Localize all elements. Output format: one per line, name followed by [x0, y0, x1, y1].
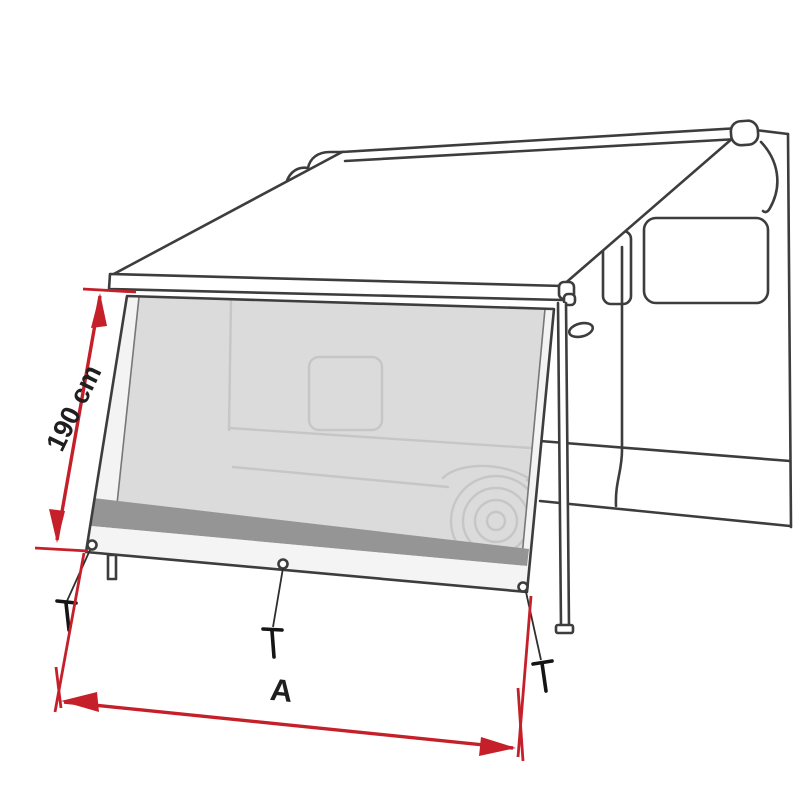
tent-peg-icon [533, 661, 552, 691]
height-dimension-label: 190 cm [40, 360, 107, 455]
grommet-icon [88, 541, 97, 550]
awning-panel-diagram: 190 cm A [0, 0, 800, 800]
support-leg-left-foot [108, 555, 116, 579]
width-dimension-line [64, 702, 513, 748]
arrowhead-left [61, 692, 99, 712]
van-bottom-edge [540, 501, 790, 526]
van-front-edge [788, 134, 791, 527]
support-leg-right-foot [556, 625, 573, 633]
pull-strap-icon [568, 321, 594, 339]
tent-peg-icon [263, 629, 282, 657]
van-body-crease [540, 441, 790, 461]
width-dimension-label: A [269, 672, 295, 709]
grommet-icon [279, 560, 288, 569]
height-bottom-tick [35, 548, 88, 551]
side-panel [86, 296, 554, 592]
arrowhead-right [479, 737, 516, 756]
van-window [644, 218, 768, 303]
width-extension-line [518, 596, 531, 757]
diagram-canvas: 190 cm A [0, 0, 800, 800]
arrowhead-up [91, 293, 107, 328]
awning-support-leg-right [556, 303, 594, 633]
van-roof-edge [755, 130, 788, 134]
van-cab-curve [761, 142, 777, 212]
arrowhead-down [49, 509, 65, 543]
grommet-icon [519, 583, 528, 592]
awning-case-end-cap [730, 120, 759, 146]
